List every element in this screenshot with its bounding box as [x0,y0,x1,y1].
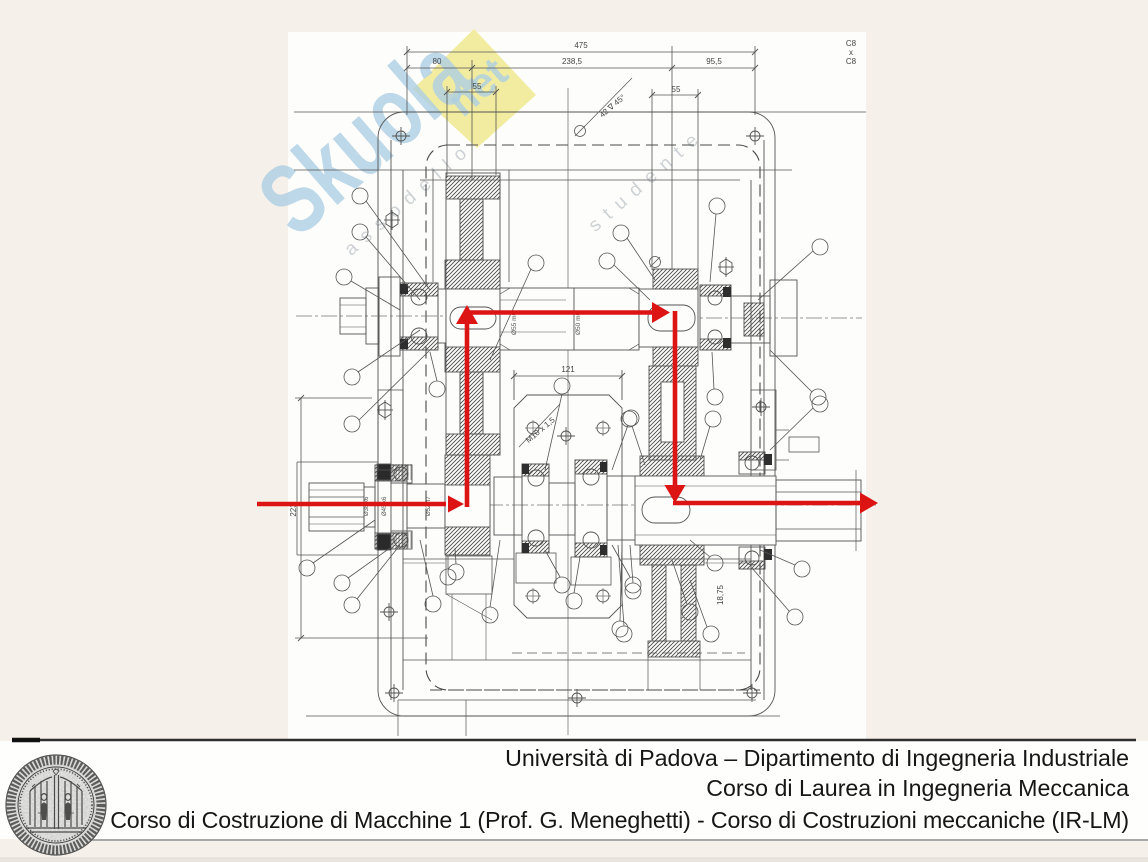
svg-text:Corso di Costruzione di Macchi: Corso di Costruzione di Macchine 1 (Prof… [110,807,1129,833]
svg-text:80: 80 [433,57,442,66]
svg-text:18,75: 18,75 [716,584,725,605]
svg-text:55: 55 [473,82,482,91]
svg-text:C8: C8 [846,39,857,48]
svg-text:C8: C8 [846,57,857,66]
svg-text:x: x [849,48,853,57]
svg-text:Università di Padova – Diparti: Università di Padova – Dipartimento di I… [505,745,1129,771]
svg-text:95,5: 95,5 [706,57,722,66]
svg-text:Ø50 m6: Ø50 m6 [575,311,582,335]
svg-text:Corso di Laurea in Ingegneria: Corso di Laurea in Ingegneria Meccanica [706,775,1129,801]
svg-text:475: 475 [574,41,588,50]
svg-text:Ø55 m6: Ø55 m6 [511,311,518,335]
svg-text:55: 55 [672,85,681,94]
svg-text:238,5: 238,5 [562,57,583,66]
